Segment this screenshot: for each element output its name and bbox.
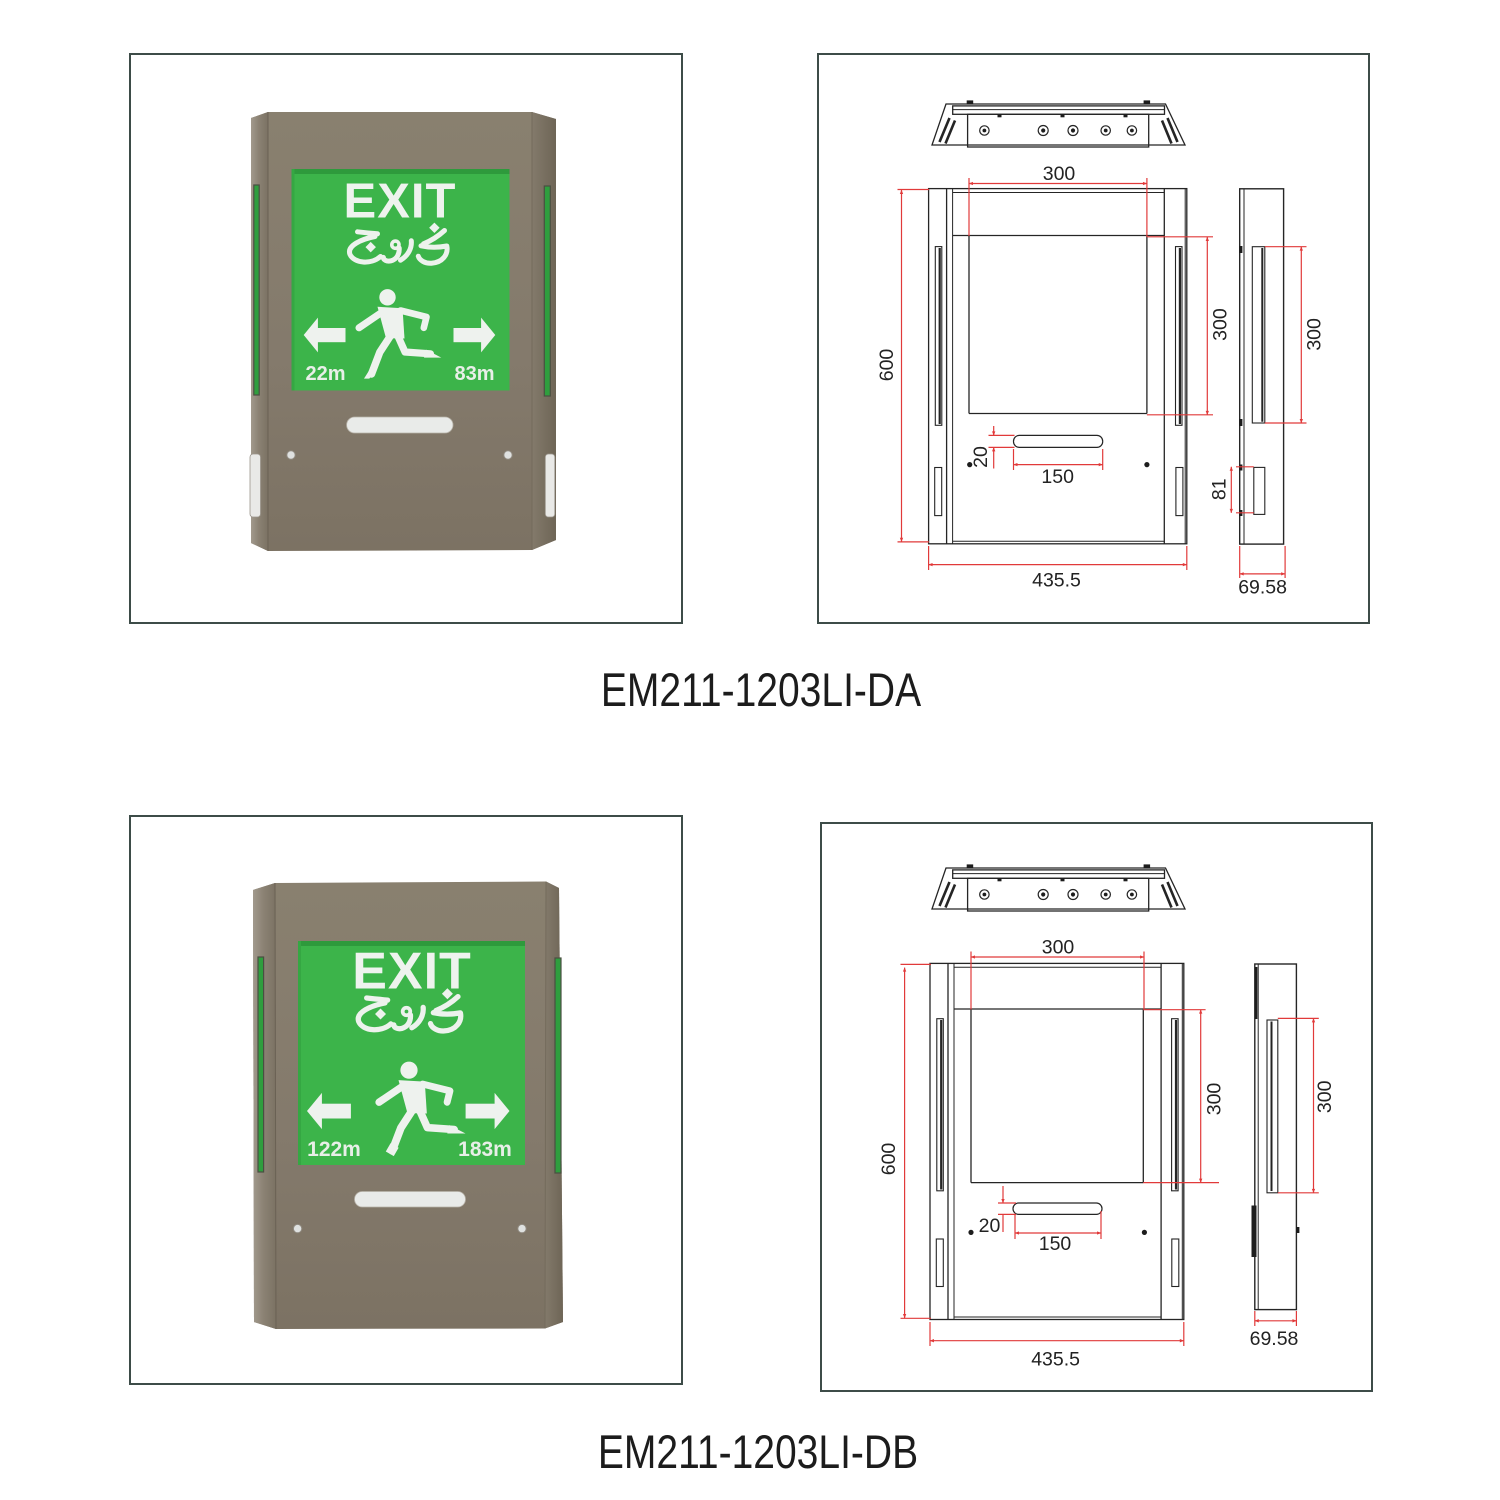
svg-text:435.5: 435.5 xyxy=(1031,1349,1080,1371)
svg-text:EXIT: EXIT xyxy=(344,175,457,229)
svg-text:300: 300 xyxy=(1204,1083,1226,1116)
svg-text:150: 150 xyxy=(1039,1233,1072,1255)
svg-text:150: 150 xyxy=(1041,466,1074,488)
svg-text:435.5: 435.5 xyxy=(1032,570,1081,592)
svg-text:69.58: 69.58 xyxy=(1250,1328,1299,1350)
svg-text:183m: 183m xyxy=(458,1138,512,1161)
svg-text:20: 20 xyxy=(979,1215,1001,1237)
svg-text:300: 300 xyxy=(1314,1080,1336,1113)
svg-text:600: 600 xyxy=(878,1143,900,1176)
svg-text:69.58: 69.58 xyxy=(1238,577,1287,599)
svg-text:122m: 122m xyxy=(307,1138,361,1161)
svg-text:300: 300 xyxy=(1043,163,1076,185)
svg-text:81: 81 xyxy=(1208,478,1230,500)
svg-text:83m: 83m xyxy=(454,363,494,385)
svg-text:20: 20 xyxy=(970,446,992,468)
svg-text:EXIT: EXIT xyxy=(352,943,472,1001)
svg-text:300: 300 xyxy=(1042,937,1075,959)
svg-text:300: 300 xyxy=(1209,308,1231,341)
svg-text:300: 300 xyxy=(1303,318,1325,351)
svg-text:22m: 22m xyxy=(305,363,345,385)
svg-text:600: 600 xyxy=(876,349,898,382)
